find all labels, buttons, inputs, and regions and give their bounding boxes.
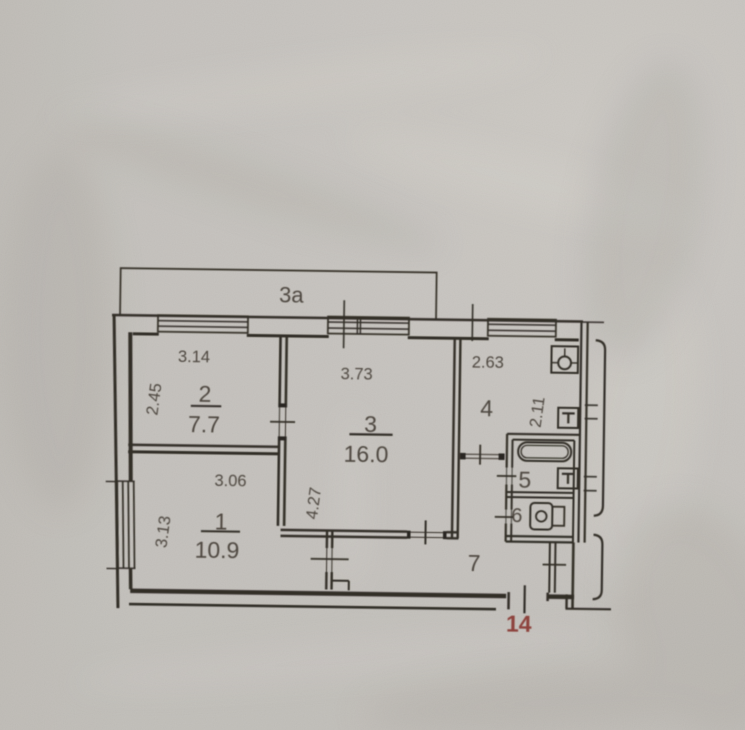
- svg-text:2: 2: [198, 381, 211, 407]
- svg-text:3.14: 3.14: [178, 348, 210, 366]
- svg-text:14: 14: [506, 611, 532, 637]
- svg-text:16.0: 16.0: [343, 441, 388, 468]
- svg-text:10.9: 10.9: [194, 537, 239, 564]
- svg-text:3а: 3а: [279, 282, 305, 307]
- svg-text:6: 6: [511, 505, 522, 527]
- svg-text:3.73: 3.73: [340, 365, 372, 383]
- svg-text:5: 5: [518, 467, 531, 493]
- svg-text:4: 4: [480, 395, 493, 421]
- svg-text:2.63: 2.63: [472, 353, 504, 371]
- svg-text:7: 7: [468, 550, 481, 576]
- svg-text:3.06: 3.06: [214, 472, 246, 490]
- svg-text:7.7: 7.7: [188, 411, 220, 437]
